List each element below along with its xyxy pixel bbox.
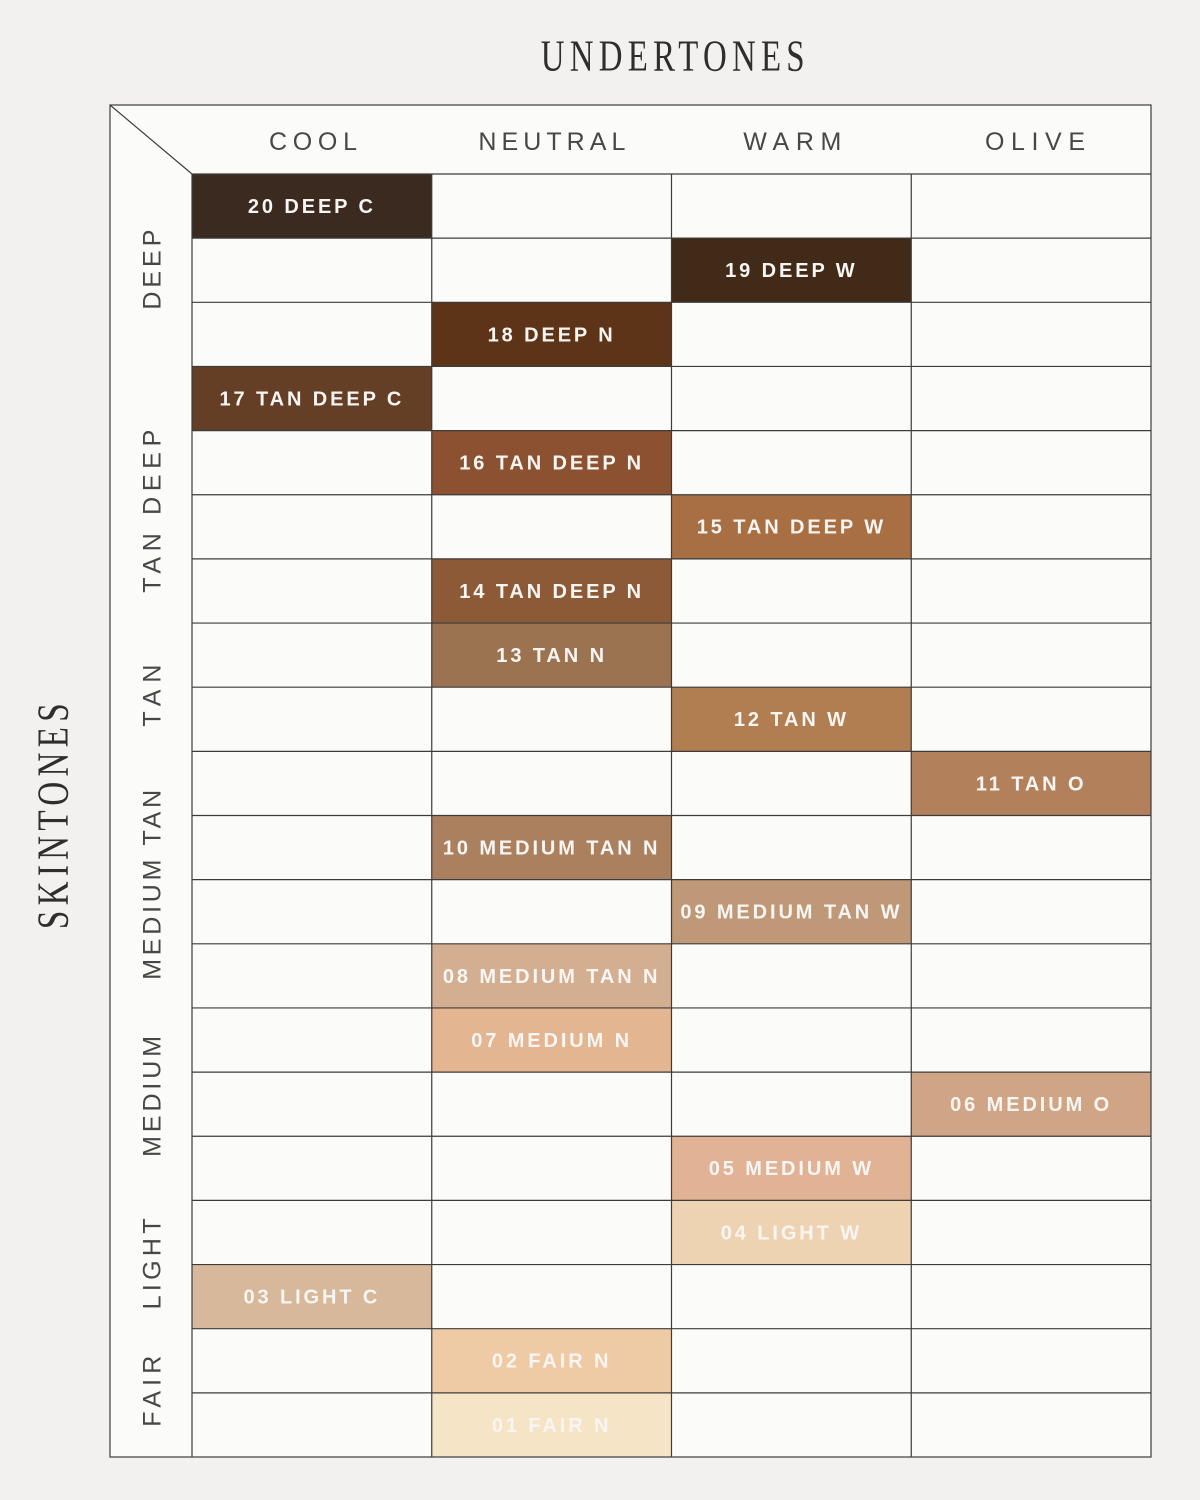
svg-text:18 DEEP N: 18 DEEP N	[488, 324, 616, 346]
svg-text:01 FAIR N: 01 FAIR N	[492, 1415, 611, 1437]
svg-text:TAN DEEP: TAN DEEP	[139, 430, 167, 593]
svg-text:10 MEDIUM TAN N: 10 MEDIUM TAN N	[443, 837, 661, 859]
svg-text:03 LIGHT C: 03 LIGHT C	[243, 1287, 380, 1309]
svg-text:11 TAN O: 11 TAN O	[976, 773, 1087, 795]
svg-text:14 TAN DEEP N: 14 TAN DEEP N	[459, 581, 644, 603]
svg-text:04 LIGHT W: 04 LIGHT W	[721, 1222, 862, 1244]
svg-text:FAIR: FAIR	[139, 1356, 167, 1427]
svg-text:OLIVE: OLIVE	[985, 128, 1085, 156]
svg-text:UNDERTONES: UNDERTONES	[541, 32, 810, 81]
svg-text:15 TAN DEEP W: 15 TAN DEEP W	[697, 517, 886, 539]
svg-text:06 MEDIUM O: 06 MEDIUM O	[950, 1094, 1112, 1116]
svg-text:02 FAIR N: 02 FAIR N	[492, 1351, 611, 1373]
svg-text:SKINTONES: SKINTONES	[28, 698, 77, 929]
svg-text:TAN: TAN	[139, 665, 167, 727]
svg-text:MEDIUM TAN: MEDIUM TAN	[139, 790, 167, 980]
svg-text:19 DEEP W: 19 DEEP W	[725, 260, 857, 282]
svg-text:MEDIUM: MEDIUM	[139, 1036, 167, 1157]
svg-text:LIGHT: LIGHT	[139, 1218, 167, 1309]
svg-text:16 TAN DEEP N: 16 TAN DEEP N	[459, 453, 644, 475]
svg-text:05 MEDIUM W: 05 MEDIUM W	[709, 1158, 874, 1180]
svg-text:13 TAN N: 13 TAN N	[496, 645, 607, 667]
svg-text:17 TAN DEEP C: 17 TAN DEEP C	[219, 388, 404, 410]
svg-text:20 DEEP C: 20 DEEP C	[248, 196, 376, 218]
svg-text:07 MEDIUM N: 07 MEDIUM N	[471, 1030, 632, 1052]
svg-text:08 MEDIUM TAN N: 08 MEDIUM TAN N	[443, 966, 661, 988]
svg-text:09 MEDIUM TAN W: 09 MEDIUM TAN W	[680, 902, 902, 924]
svg-text:12 TAN W: 12 TAN W	[734, 709, 849, 731]
